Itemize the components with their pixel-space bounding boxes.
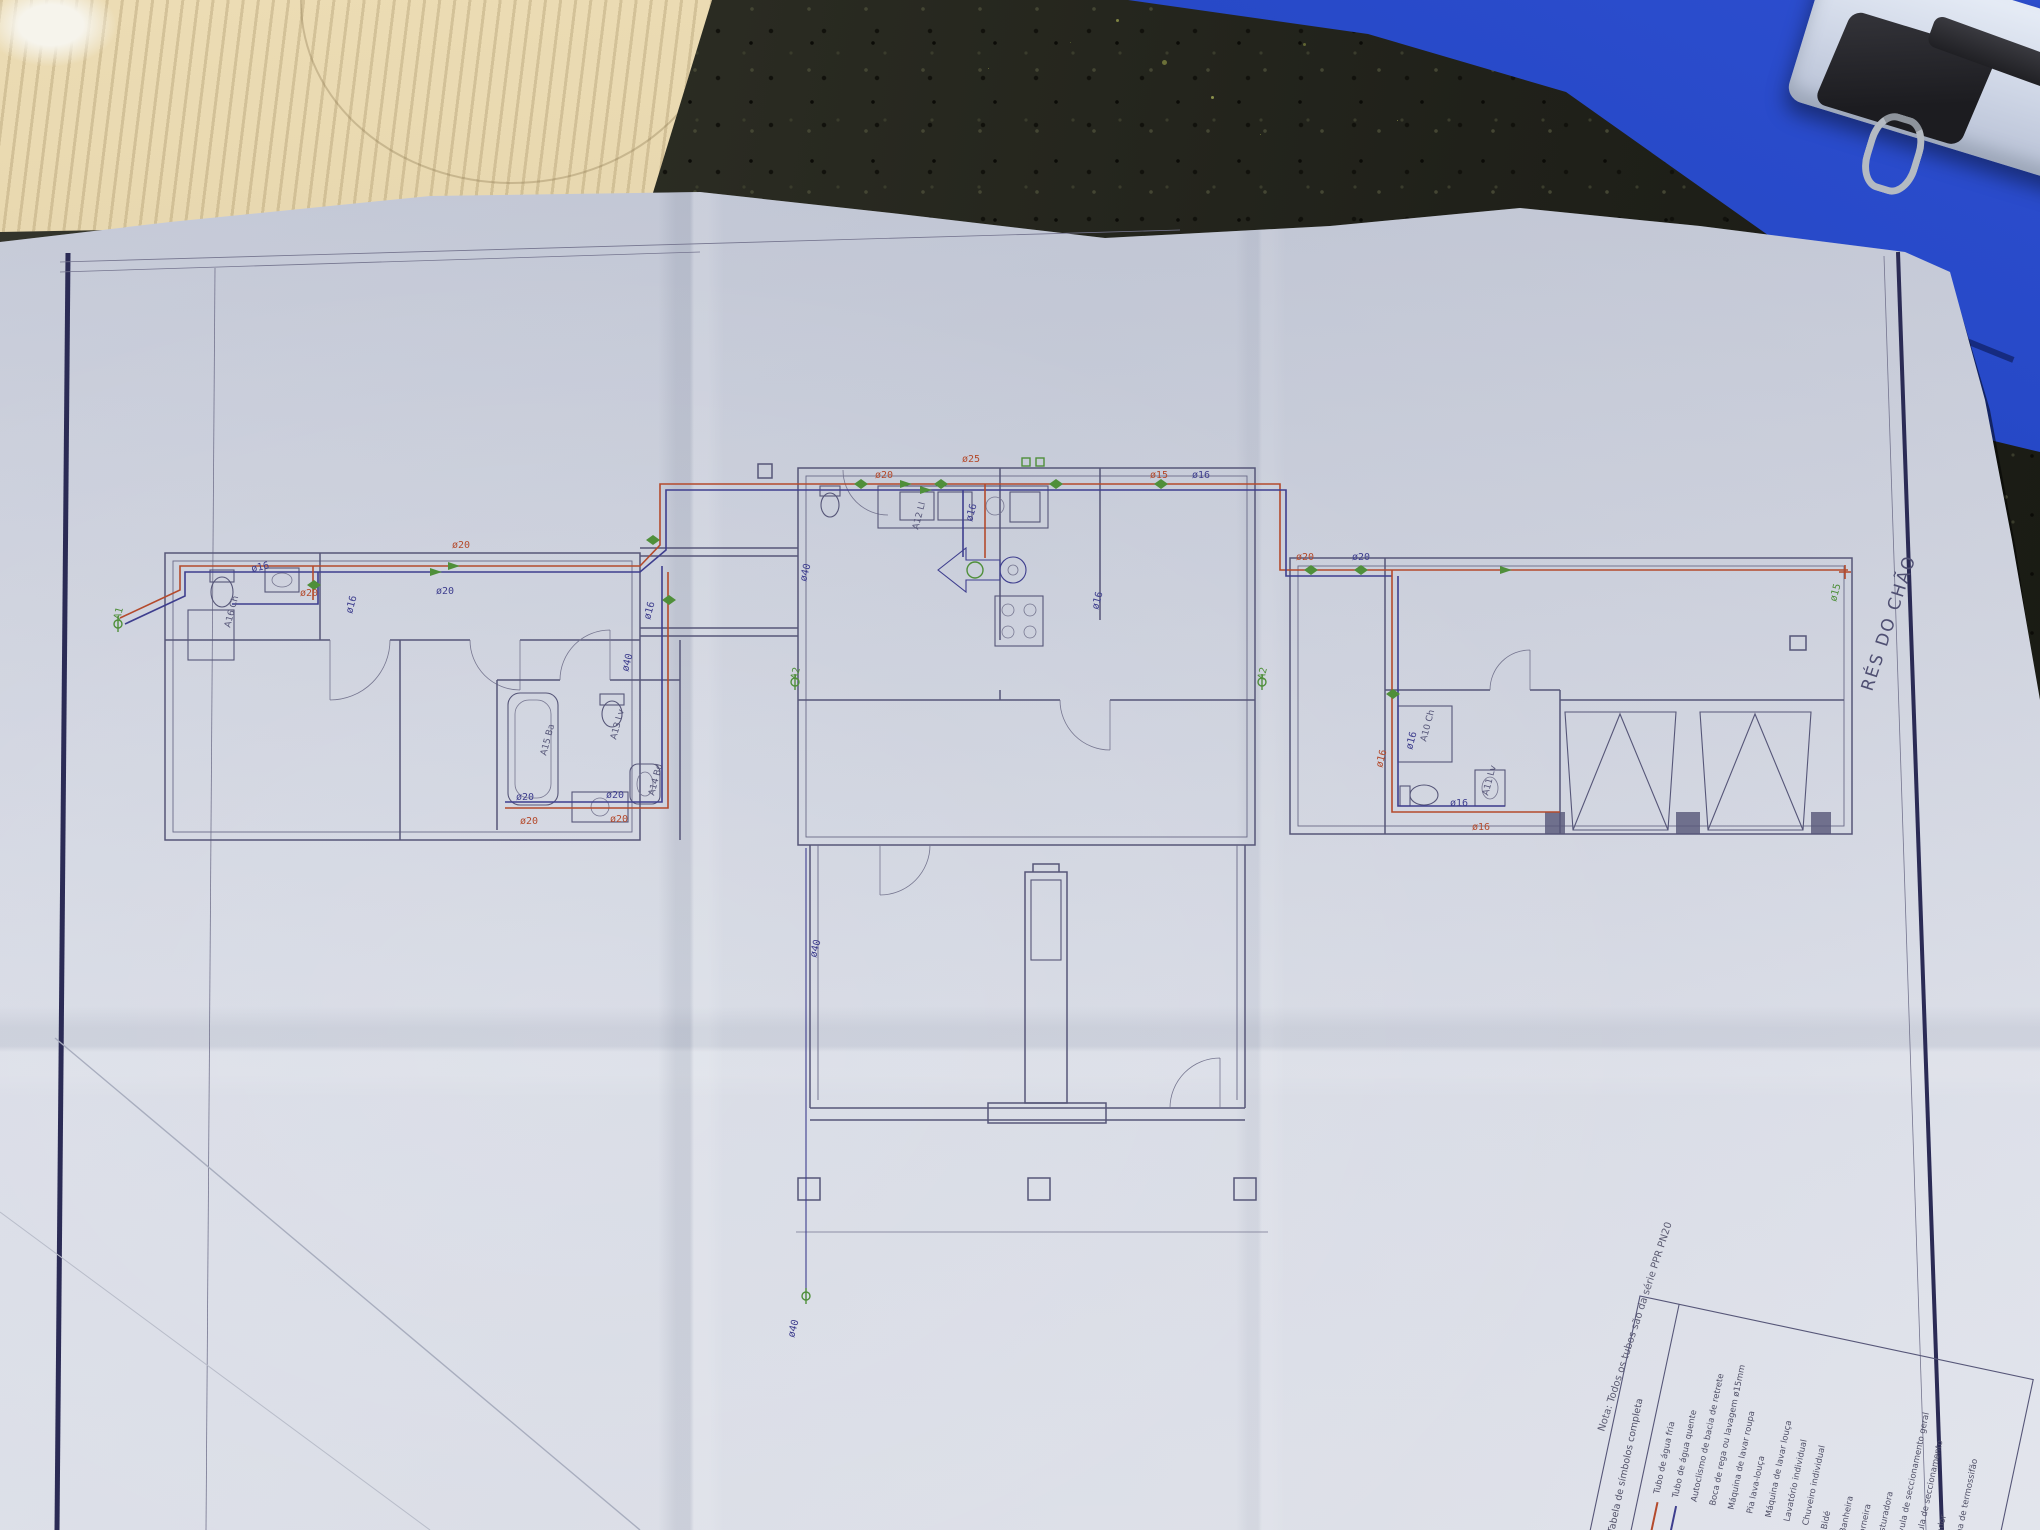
fixture-code-label: A10 Ch	[1419, 709, 1437, 743]
legend-item-label: Banheira	[1838, 1495, 1856, 1530]
photo-scene: ø16ø20ø20ø20ø16ø16ø40ø20ø25ø16ø15ø16ø16ø…	[0, 0, 2040, 1530]
pipe-diameter-label: ø16	[642, 600, 657, 620]
pipes	[120, 480, 1851, 1300]
stove	[995, 596, 1043, 646]
pipe-diameter-label: ø25	[962, 454, 980, 465]
fixture-code-label: A15 Ba	[539, 723, 557, 757]
toilet-center	[821, 493, 839, 517]
walls	[165, 464, 1852, 1232]
legend-line-symbol	[1669, 1506, 1676, 1530]
pipe-diameter-label: ø16	[1374, 748, 1389, 768]
toilet-right	[1410, 785, 1438, 805]
pipe-diameter-label: ø16	[964, 502, 979, 522]
pipe-diameter-label: ø20	[516, 792, 534, 803]
fixture-code-label: A12 Ll	[911, 501, 928, 531]
legend-item-label: Misturadora	[1875, 1491, 1895, 1530]
pipe-diameter-label: ø20	[610, 814, 628, 825]
fixture-code-label: A16 Ch	[223, 595, 241, 629]
fixture-labels: A16 ChA15 BaA13 LvA14 BdA12 LlA11 LvA10 …	[223, 501, 1499, 797]
pipe-diameter-label: ø20	[606, 790, 624, 801]
pipe-diameter-label: A2	[789, 666, 803, 680]
pipe-diameter-label: ø16	[1450, 798, 1468, 809]
legend-item-label: Sistema de termossifão	[1950, 1458, 1981, 1530]
legend-item-label: Bidé	[1819, 1510, 1834, 1530]
pipe-diameter-label: ø20	[1352, 552, 1370, 563]
pipe-diameter-label: ø16	[344, 594, 359, 614]
legend-line-symbol	[1650, 1502, 1657, 1530]
pipe-diameter-label: ø40	[798, 562, 813, 582]
pipe-diameter-label: ø20	[300, 588, 318, 599]
pipe-diameter-label: ø16	[1404, 730, 1419, 750]
pipe-diameter-label: ø20	[1296, 552, 1314, 563]
sheet-frame	[57, 230, 1942, 1530]
pipe-diameter-label: ø40	[620, 652, 635, 672]
pipe-diameter-label: ø20	[436, 586, 454, 597]
pipe-diameter-label: A1	[112, 606, 126, 620]
fixtures	[188, 486, 1505, 1123]
pipe-diameter-label: ø15	[1150, 470, 1168, 481]
pipe-diameter-label: ø15	[1828, 582, 1843, 602]
flow-arrow	[938, 548, 1000, 592]
pipe-diameter-label: ø20	[520, 816, 538, 827]
pipe-diameter-label: ø40	[786, 1318, 801, 1338]
legend-table: Tabela de símbolos completa Tubo de água…	[1588, 1296, 2034, 1530]
legend-item-label: Contador	[1931, 1513, 1949, 1530]
pipe-diameter-label: A2	[1256, 666, 1270, 680]
floor-plan-drawing: ø16ø20ø20ø20ø16ø16ø40ø20ø25ø16ø15ø16ø16ø…	[0, 0, 2040, 1530]
pipe-labels: ø16ø20ø20ø20ø16ø16ø40ø20ø25ø16ø15ø16ø16ø…	[112, 454, 1843, 1339]
pipe-diameter-label: ø20	[452, 540, 470, 551]
pipe-diameter-label: ø16	[1472, 822, 1490, 833]
water-heater	[1000, 557, 1026, 583]
legend-item-label: Torneira	[1857, 1503, 1874, 1530]
valves	[114, 458, 1400, 1304]
pipe-diameter-label: ø16	[1090, 590, 1105, 610]
pipe-diameter-label: ø20	[875, 470, 893, 481]
fixture-code-label: A13 Lv	[609, 708, 627, 741]
pipe-diameter-label: ø16	[1192, 470, 1210, 481]
legend-item-label: Pia lava-louça	[1745, 1455, 1767, 1515]
paper-creases	[0, 1038, 640, 1530]
